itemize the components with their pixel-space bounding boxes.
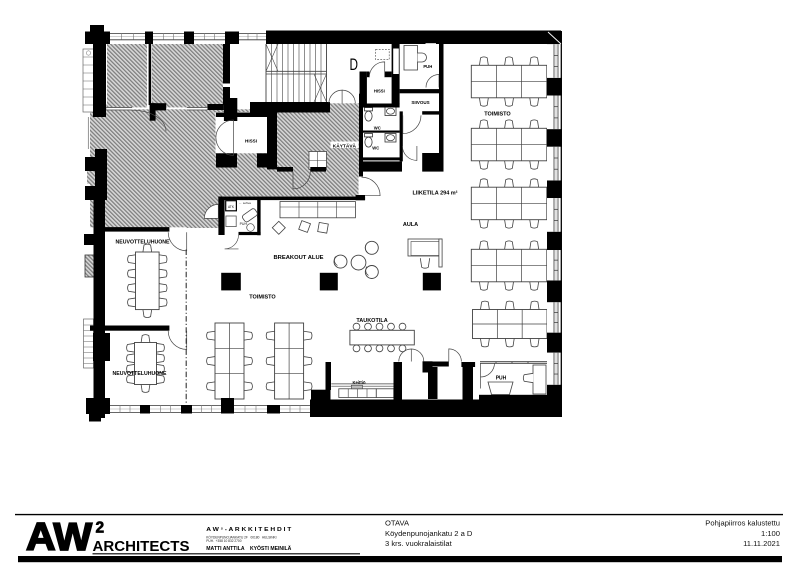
svg-text:OTAVA: OTAVA bbox=[385, 519, 410, 528]
svg-text:Keittiö: Keittiö bbox=[352, 380, 365, 385]
svg-text:2: 2 bbox=[96, 520, 105, 537]
svg-text:PUH: PUH bbox=[496, 375, 507, 381]
svg-text:PUH: PUH bbox=[423, 64, 432, 69]
svg-text:NEUVOTTELUHUONE: NEUVOTTELUHUONE bbox=[113, 371, 167, 377]
svg-text:AW: AW bbox=[26, 516, 93, 559]
svg-text:PUH: PUH bbox=[240, 222, 248, 226]
svg-text:Pohjapiirros kalustettu: Pohjapiirros kalustettu bbox=[705, 519, 780, 528]
svg-text:SIIVOUS: SIIVOUS bbox=[411, 100, 429, 105]
svg-text:D: D bbox=[350, 56, 359, 74]
svg-text:HISSI: HISSI bbox=[245, 138, 257, 143]
svg-text:11.11.2021: 11.11.2021 bbox=[743, 539, 780, 548]
svg-text:TAUKOTILA: TAUKOTILA bbox=[356, 318, 387, 324]
svg-text:NEUVOTTELUHUONE: NEUVOTTELUHUONE bbox=[116, 240, 170, 246]
svg-text:BREAKOUT ALUE: BREAKOUT ALUE bbox=[273, 255, 323, 261]
svg-text:WC: WC bbox=[374, 126, 381, 131]
svg-text:HISSI: HISSI bbox=[374, 89, 385, 94]
svg-text:KÄYTÄVÄ: KÄYTÄVÄ bbox=[333, 142, 357, 149]
svg-text:A W ² - A R K K I T E H D I T: A W ² - A R K K I T E H D I T bbox=[206, 527, 291, 533]
svg-text:ATK: ATK bbox=[228, 205, 235, 209]
svg-text:AULA: AULA bbox=[403, 222, 418, 228]
svg-text:TOIMISTO: TOIMISTO bbox=[249, 294, 276, 300]
svg-text:Köydenpunojankatu 2 a D: Köydenpunojankatu 2 a D bbox=[385, 529, 473, 538]
svg-text:MATTI ANTTILA KYÖSTI MEINIL: MATTI ANTTILA KYÖSTI MEINILÄ bbox=[206, 545, 291, 552]
svg-text:1:100: 1:100 bbox=[761, 529, 780, 538]
svg-text:TOIMISTO: TOIMISTO bbox=[484, 111, 511, 117]
svg-text:3 krs. vuokralaistilat: 3 krs. vuokralaistilat bbox=[385, 539, 453, 548]
svg-text:ARCHITECTS: ARCHITECTS bbox=[93, 539, 190, 555]
svg-text:← sohva: ← sohva bbox=[239, 201, 251, 205]
svg-text:PUH. +358 10 832 2700: PUH. +358 10 832 2700 bbox=[206, 539, 241, 543]
svg-text:LIIKETILA 294 m²: LIIKETILA 294 m² bbox=[412, 190, 457, 197]
svg-text:WC: WC bbox=[372, 145, 379, 150]
